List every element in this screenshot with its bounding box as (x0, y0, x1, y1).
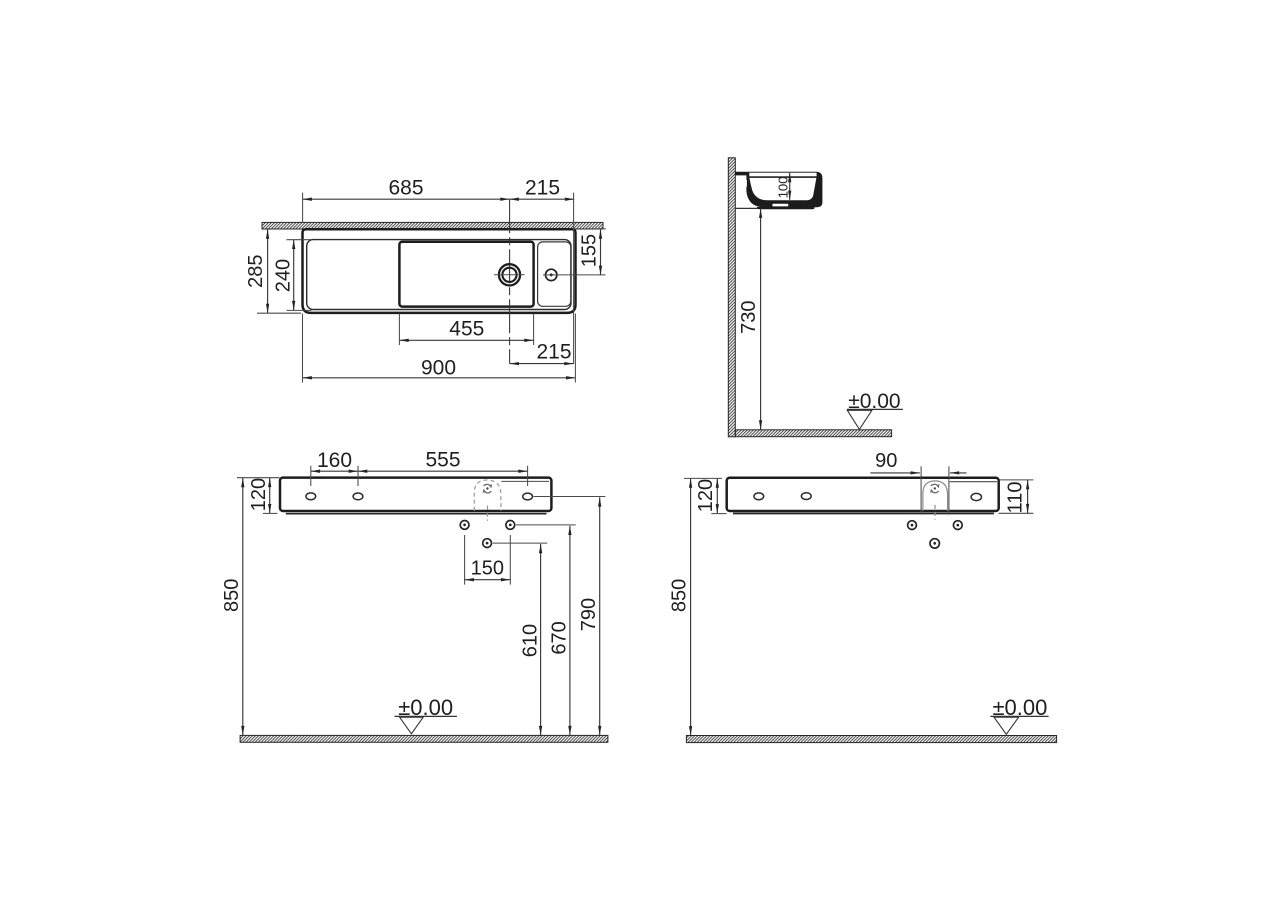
svg-text:685: 685 (388, 176, 423, 199)
svg-text:215: 215 (525, 176, 560, 199)
svg-text:850: 850 (669, 579, 691, 612)
svg-text:730: 730 (738, 301, 760, 334)
svg-text:120: 120 (248, 478, 270, 511)
svg-text:160: 160 (317, 449, 352, 472)
svg-text:90: 90 (875, 450, 897, 472)
svg-text:155: 155 (579, 234, 601, 267)
svg-text:120: 120 (695, 479, 717, 512)
svg-text:790: 790 (578, 598, 600, 631)
svg-text:215: 215 (536, 341, 571, 364)
svg-text:110: 110 (1004, 481, 1026, 513)
svg-text:150: 150 (471, 558, 504, 580)
svg-text:610: 610 (519, 624, 541, 657)
svg-text:285: 285 (245, 255, 267, 288)
svg-text:850: 850 (221, 579, 243, 612)
svg-text:670: 670 (549, 621, 571, 654)
svg-text:100: 100 (775, 176, 790, 198)
svg-text:900: 900 (421, 357, 456, 380)
svg-text:455: 455 (449, 317, 484, 340)
svg-text:555: 555 (425, 449, 460, 472)
svg-text:240: 240 (273, 259, 295, 292)
